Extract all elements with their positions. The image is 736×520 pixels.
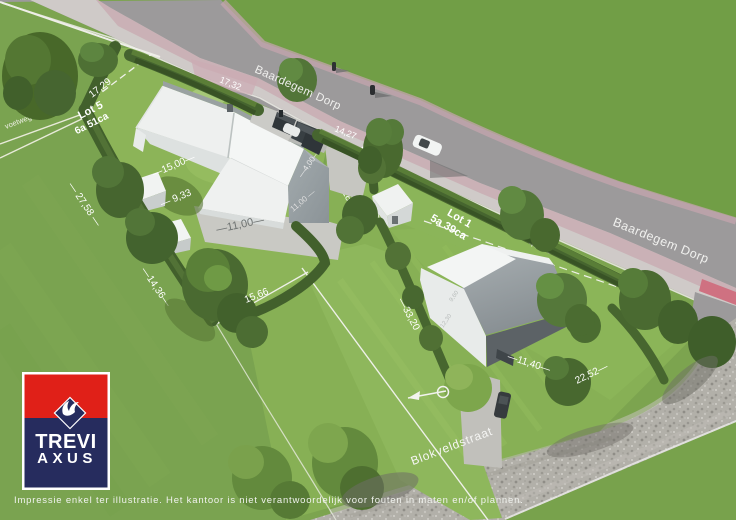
- svg-text:AXUS: AXUS: [37, 450, 97, 467]
- svg-text:Impressie enkel ter illustrati: Impressie enkel ter illustratie. Het kan…: [14, 495, 524, 506]
